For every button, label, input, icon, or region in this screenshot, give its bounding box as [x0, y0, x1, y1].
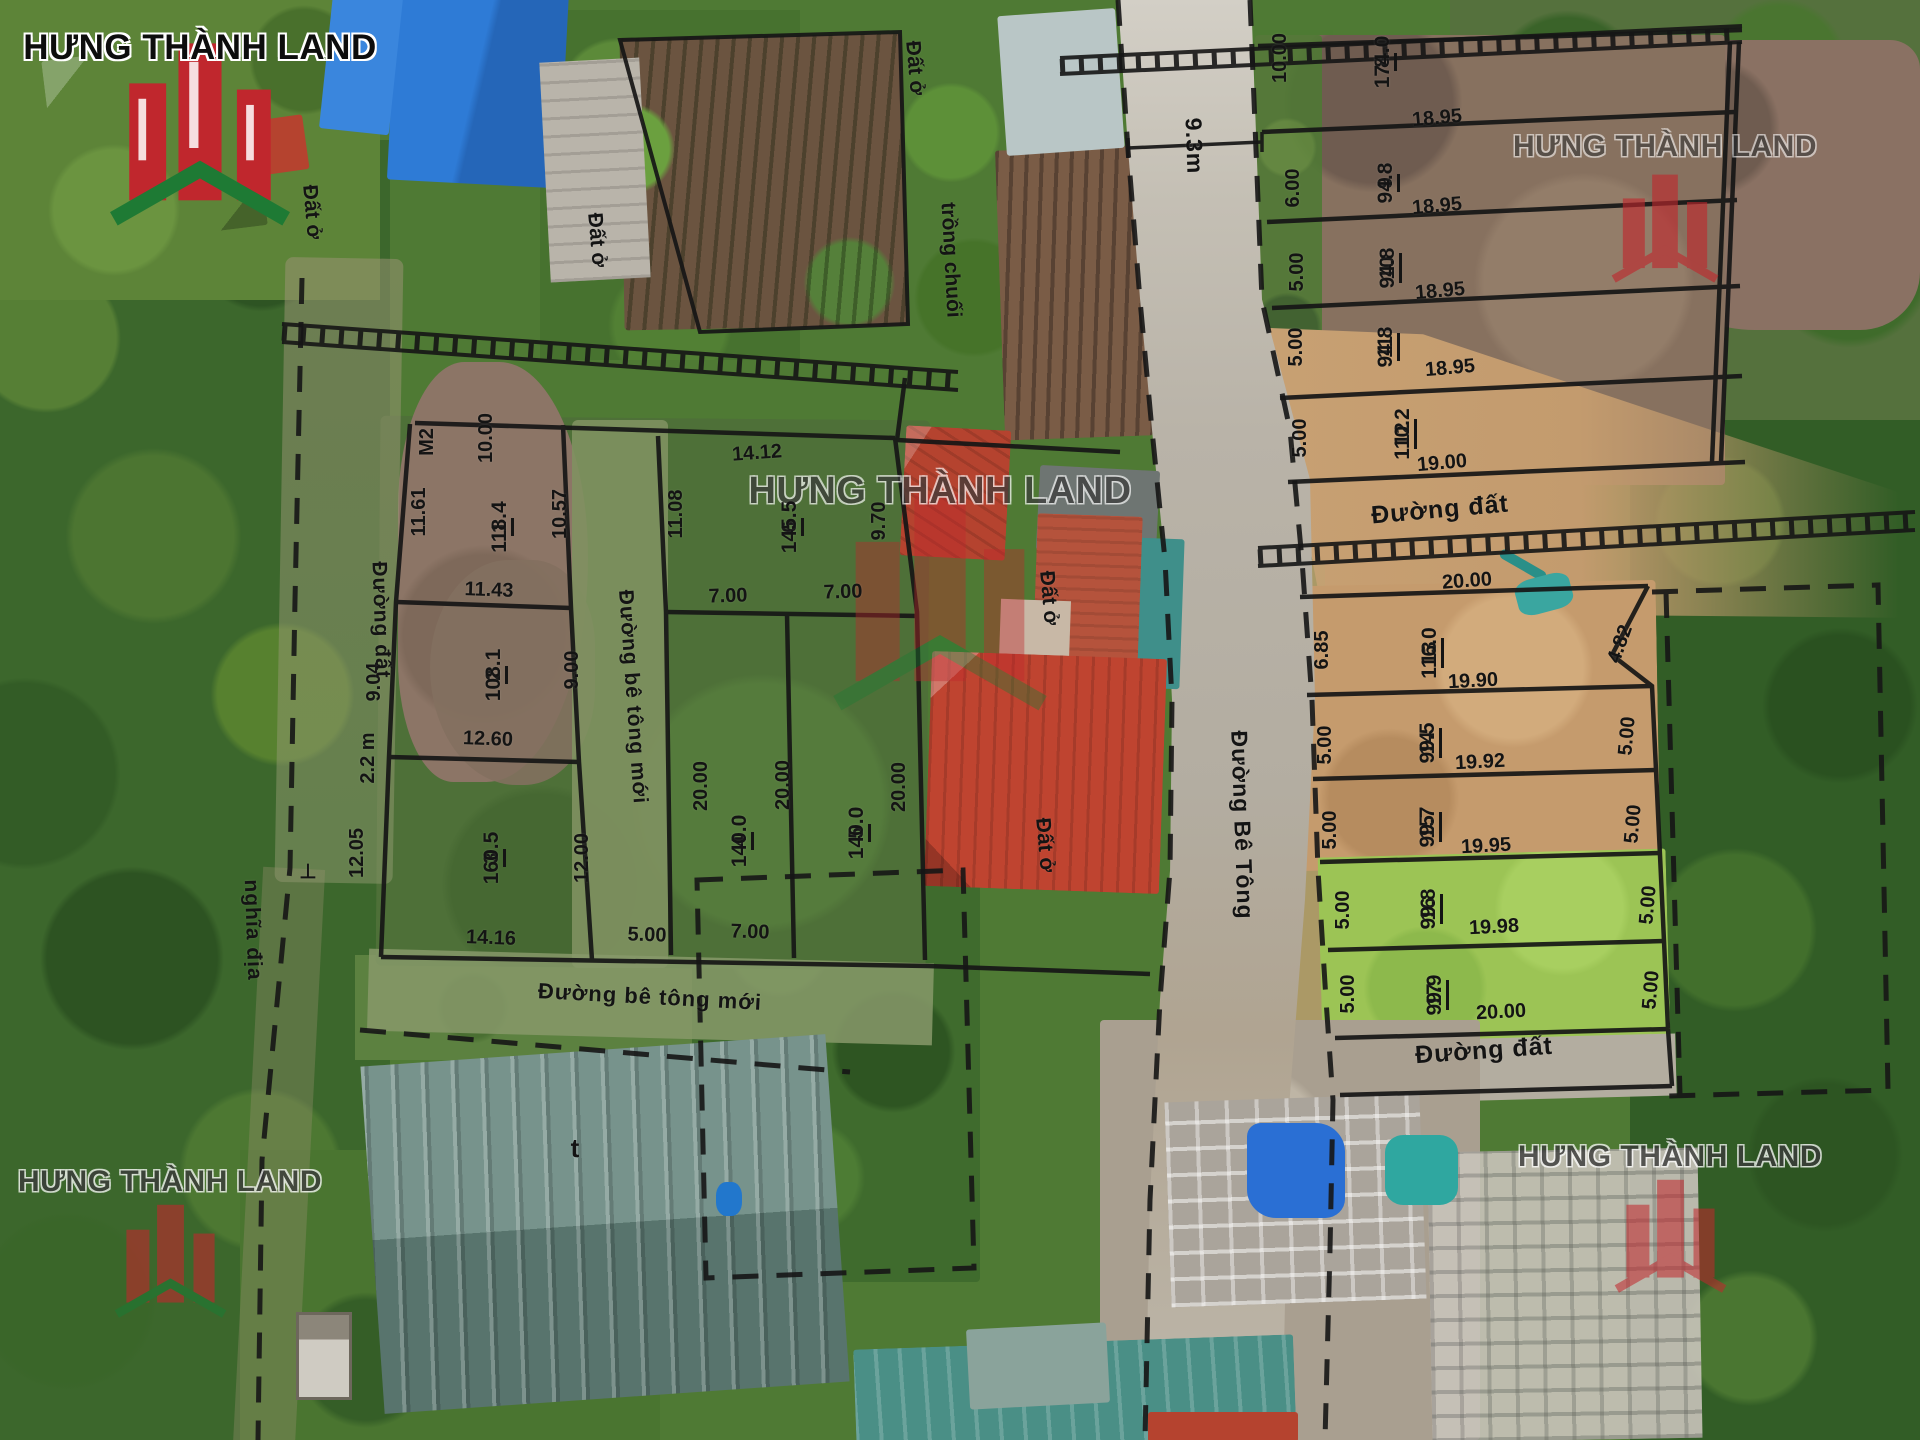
hatched-road-symbols: [282, 26, 1915, 566]
plot-boundary-lines: [381, 30, 1745, 1095]
survey-lines: [0, 0, 1920, 1440]
dashed-boundary-lines: [258, 0, 1888, 1440]
aerial-land-plot-map: 1118.42108.13160.54140.05140.06145.58174…: [0, 0, 1920, 1440]
